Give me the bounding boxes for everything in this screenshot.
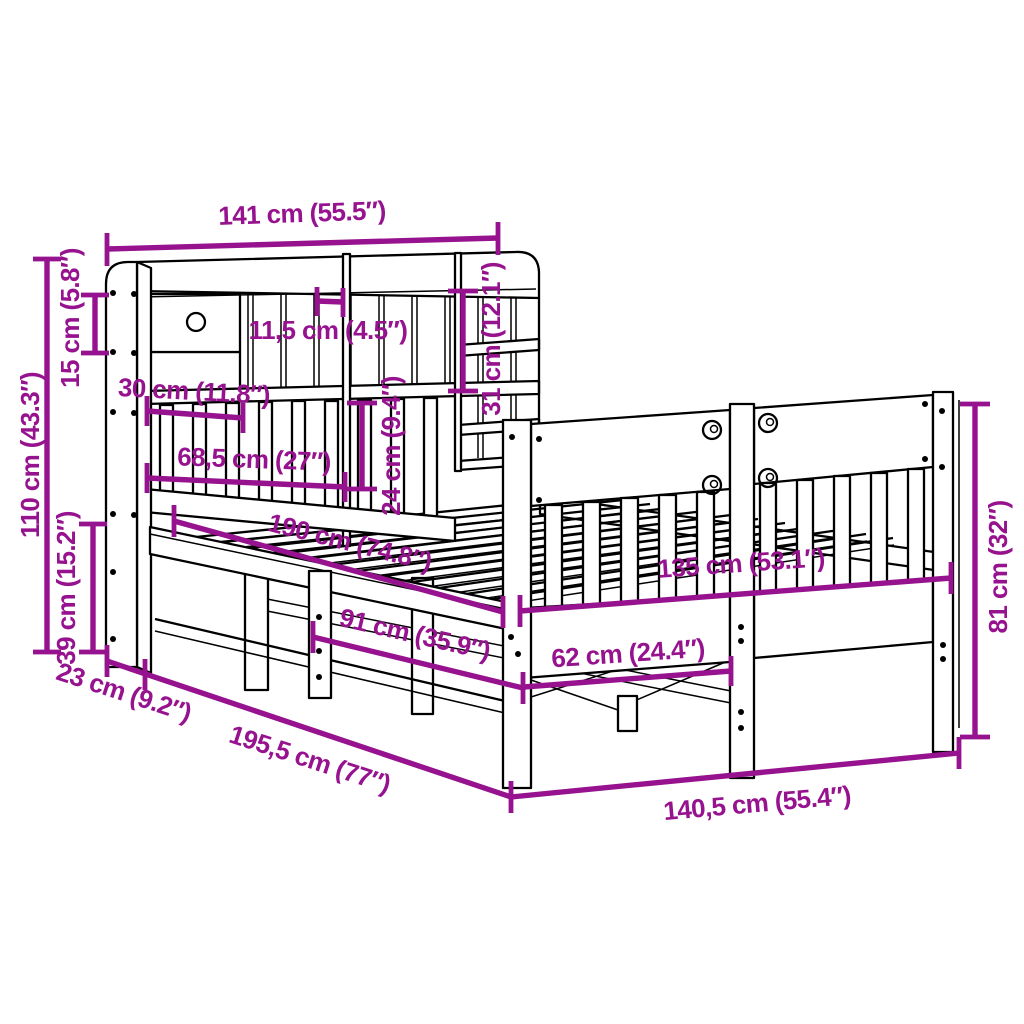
dim-label-headboard-width: 141 cm (55.5″)	[218, 195, 386, 231]
dim-label-shelf-row-height: 31 cm (12.1″)	[476, 262, 506, 416]
dim-base-height	[79, 524, 107, 652]
dim-slat-panel-height	[347, 403, 377, 489]
footboard-post-left	[503, 420, 531, 788]
bed-illustration	[106, 252, 959, 788]
footboard	[503, 392, 959, 788]
dim-label-slat-panel-height: 24 cm (9.4″)	[376, 376, 406, 516]
diagram-canvas: 141 cm (55.5″) 15 cm (5.8″) 110 cm (43.3…	[0, 0, 1024, 1024]
dim-label-total-width: 140,5 cm (55.4″)	[662, 780, 852, 826]
dim-label-drawer-height: 15 cm (5.8″)	[55, 248, 85, 388]
dim-label-slat-panel-width: 68,5 cm (27″)	[177, 441, 331, 476]
headboard-front-stile	[106, 262, 137, 667]
dim-label-headboard-height: 110 cm (43.3″)	[15, 372, 45, 538]
dim-drawer-height	[81, 295, 109, 353]
dim-label-compartment-width: 11,5 cm (4.5″)	[249, 315, 408, 345]
dim-label-base-height: 39 cm (15.2″)	[51, 511, 81, 665]
dim-label-footboard-height: 81 cm (32″)	[983, 500, 1013, 633]
footboard-panel-right	[754, 395, 933, 484]
footboard-center-foot	[618, 696, 637, 731]
bed-dimension-diagram: 141 cm (55.5″) 15 cm (5.8″) 110 cm (43.3…	[0, 0, 1024, 1024]
dim-shelf-row-height	[448, 291, 478, 391]
